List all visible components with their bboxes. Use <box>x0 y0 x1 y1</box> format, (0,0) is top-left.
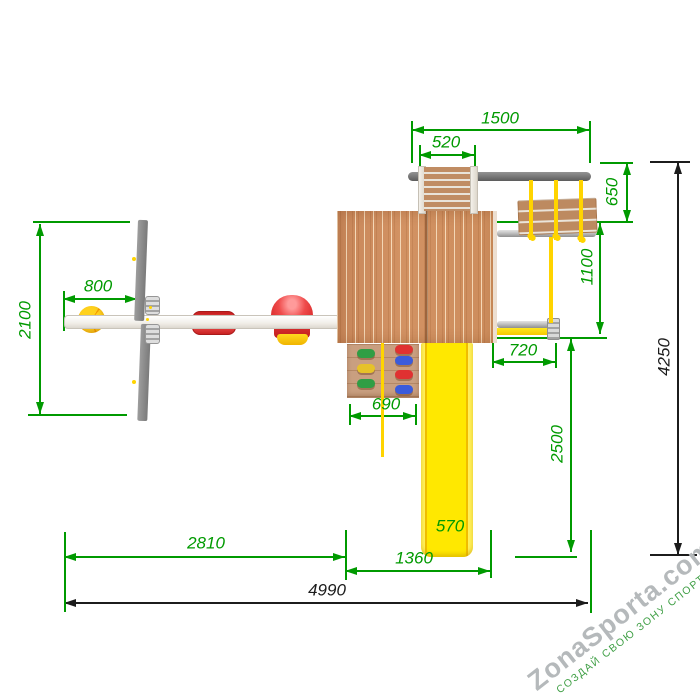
climbing-hold-red <box>395 370 413 379</box>
vertical-rope <box>549 237 553 323</box>
dim-1100-label: 1100 <box>579 249 596 286</box>
swing-rope <box>554 180 558 240</box>
climbing-hold-green <box>357 349 375 358</box>
bolt-dot <box>149 306 152 309</box>
extension-line <box>492 343 494 368</box>
dim-1500-line <box>412 129 589 131</box>
bolt-dot <box>132 257 136 261</box>
extension-line <box>589 121 591 163</box>
playground-top-view-drawing: 1500 520 800 720 690 570 2810 1360 2100 … <box>0 0 700 700</box>
dim-1100-line <box>599 223 601 334</box>
dim-690-label: 690 <box>372 396 400 413</box>
dim-4250-line <box>677 162 679 555</box>
extension-line <box>650 554 697 556</box>
extension-line <box>349 404 351 425</box>
ladder-rail-right <box>470 166 478 214</box>
dim-2100-line <box>39 224 41 414</box>
dim-720-label: 720 <box>509 342 537 359</box>
dim-2100-label: 2100 <box>17 301 34 339</box>
dim-2500-line <box>570 339 572 552</box>
dim-720-line <box>492 361 555 363</box>
extension-line <box>411 121 413 163</box>
extension-line <box>33 221 130 223</box>
dim-2810-label: 2810 <box>187 535 225 552</box>
watermark-slogan: СОЗДАЙ СВОЮ ЗОНУ СПОРТА <box>555 568 700 695</box>
extension-line <box>419 145 421 167</box>
watermark-brand: ZonaSporta.com <box>523 534 700 695</box>
extension-line <box>515 556 577 558</box>
dim-520-label: 520 <box>432 134 460 151</box>
extension-line <box>490 530 492 578</box>
dim-800-line <box>63 298 137 300</box>
dim-1500-label: 1500 <box>481 110 519 127</box>
climbing-hold-blue <box>395 356 413 365</box>
dim-570-label: 570 <box>436 518 464 535</box>
extension-line <box>474 145 476 167</box>
swing-rope <box>579 180 583 242</box>
climbing-hold-green <box>357 379 375 388</box>
extension-line <box>64 532 66 612</box>
dim-4990-line <box>64 602 588 604</box>
climbing-hold-yellow <box>357 364 375 373</box>
extension-line <box>590 530 592 613</box>
dim-1360-line <box>345 570 490 572</box>
dim-4990-label: 4990 <box>308 582 346 599</box>
dim-1360-label: 1360 <box>395 550 433 567</box>
extension-line <box>415 404 417 425</box>
extension-line <box>650 161 690 163</box>
extension-line <box>555 343 557 368</box>
watermark: ZonaSporta.com СОЗДАЙ СВОЮ ЗОНУ СПОРТА <box>509 521 700 700</box>
dim-650-line <box>626 163 628 222</box>
swing-hanger-bottom <box>145 324 160 344</box>
monkey-bar-beam <box>497 321 553 328</box>
dim-800-label: 800 <box>84 278 112 295</box>
dim-650-label: 650 <box>604 178 621 206</box>
dim-2500-label: 2500 <box>549 425 566 463</box>
extension-line <box>28 414 127 416</box>
dim-520-line <box>419 154 474 156</box>
bolt-dot <box>132 380 136 384</box>
swing-beam <box>64 315 340 329</box>
extension-line <box>600 162 633 164</box>
wooden-ladder <box>424 167 470 211</box>
roof-seam <box>425 211 428 343</box>
bolt-dot <box>146 318 149 321</box>
tower-roof-platform <box>337 211 497 343</box>
swing-hanger-top <box>145 296 160 315</box>
swing-seat-bucket-footrest <box>277 334 308 345</box>
climbing-hold-blue <box>395 385 413 394</box>
swing-rope <box>529 180 533 240</box>
extension-line <box>345 530 347 580</box>
dim-4250-label: 4250 <box>656 338 673 376</box>
climbing-hold-red <box>395 345 413 354</box>
monkey-bar <box>497 328 549 335</box>
dim-2810-line <box>64 556 345 558</box>
